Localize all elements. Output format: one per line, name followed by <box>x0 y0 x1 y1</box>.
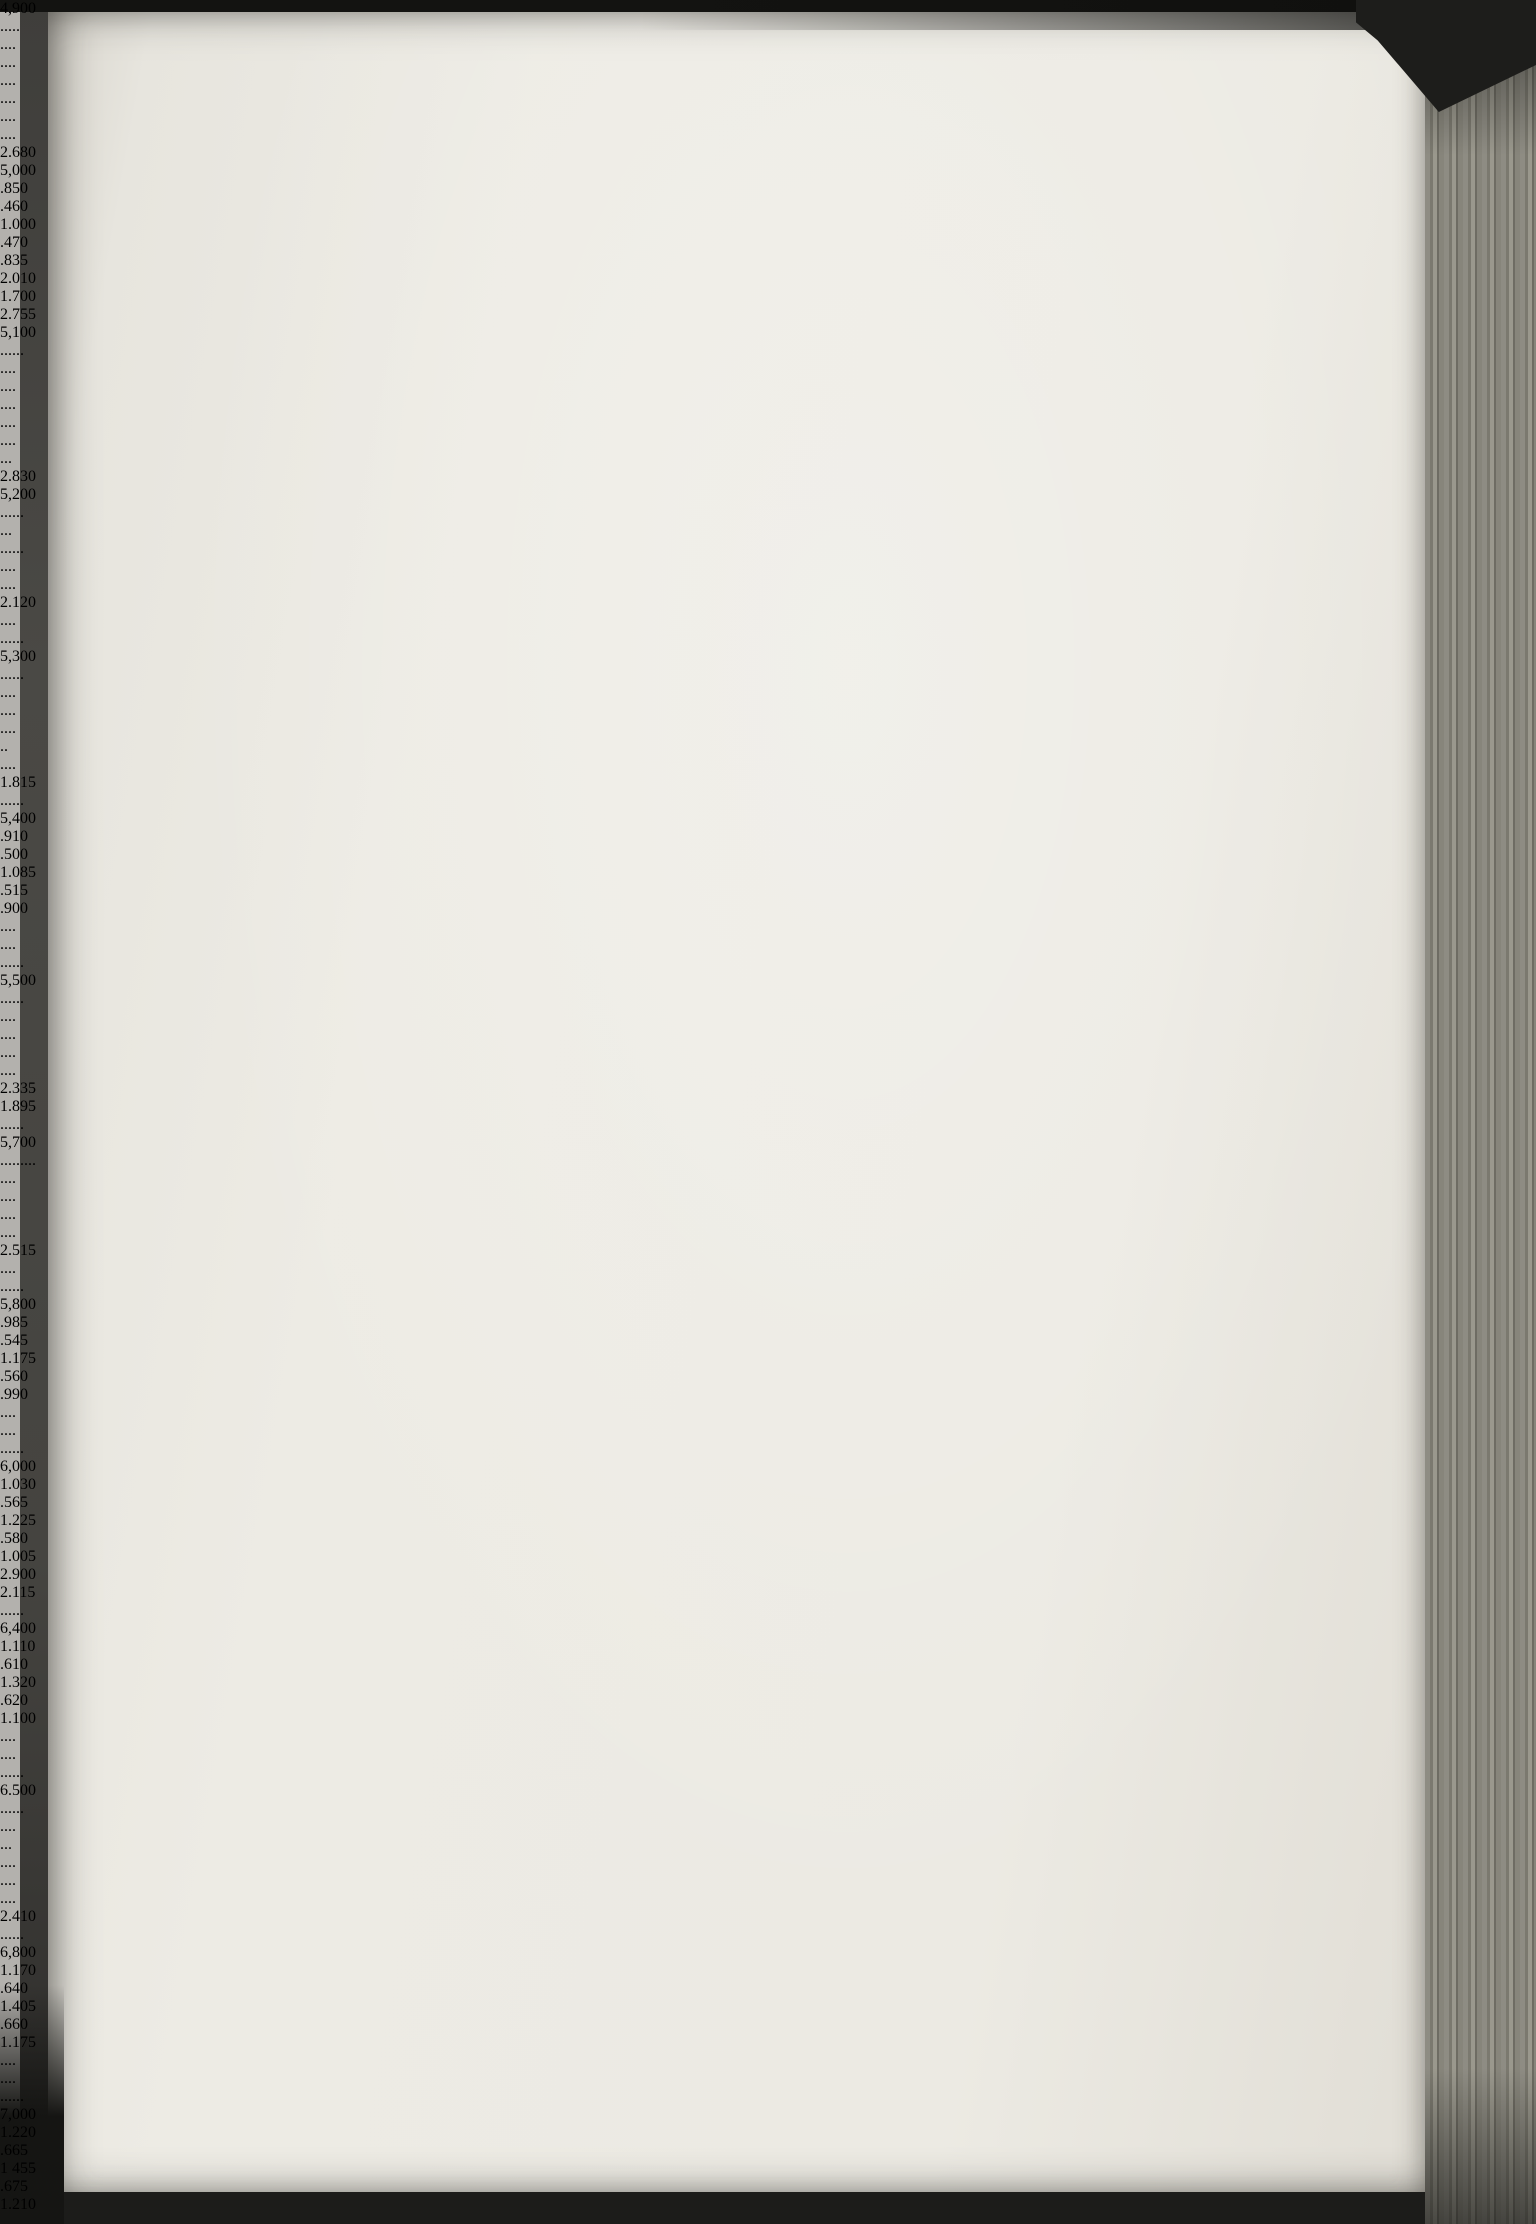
leader-dots: .... <box>0 1890 109 1908</box>
leader-dots: .... <box>0 1008 98 1026</box>
cell-value: 1.320 <box>0 1674 110 1692</box>
cell-value: .910 <box>0 828 100 846</box>
cell-value: .900 <box>0 900 98 918</box>
leader-dots: ..... <box>0 18 100 36</box>
leader-dots: .... <box>0 576 98 594</box>
leader-dots: .... <box>0 1206 82 1224</box>
load-value: 5,500 <box>0 972 96 990</box>
cell-value: 1.895 <box>0 1098 98 1116</box>
leader-dots: .... <box>0 1224 98 1242</box>
cell-value: 1.175 <box>0 1350 110 1368</box>
leader-dots: .... <box>0 702 110 720</box>
leader-dots: .... <box>0 90 98 108</box>
cell-value: 1.170 <box>0 1962 100 1980</box>
leader-dots: .... <box>0 72 82 90</box>
cell-value: 1.100 <box>0 1710 98 1728</box>
load-value: 5,300 <box>0 648 96 666</box>
cell-value: .985 <box>0 1314 100 1332</box>
cell-value: 2.010 <box>0 270 109 288</box>
load-value: 6.500 <box>0 1782 96 1800</box>
leader-dots: .... <box>0 360 98 378</box>
cell-value: 2.515 <box>0 1242 109 1260</box>
cell-value: .610 <box>0 1656 98 1674</box>
leader-dots: .... <box>0 1026 110 1044</box>
load-value: 5,100 <box>0 324 96 342</box>
leader-dots: ...... <box>0 342 100 360</box>
leader-dots: ...... <box>0 504 100 522</box>
cell-value: .620 <box>0 1692 82 1710</box>
load-value: 5,200 <box>0 486 96 504</box>
load-value: 6,000 <box>0 1458 96 1476</box>
leader-dots: ......... <box>0 1152 100 1170</box>
cell-value: .460 <box>0 198 98 216</box>
cell-value: 1.220 <box>0 2124 100 2142</box>
cell-value: 2.410 <box>0 1908 98 1926</box>
leader-dots: ...... <box>0 1800 100 1818</box>
cell-value: 1.175 <box>0 2034 98 2052</box>
table-body: 4,900.............................2.6805… <box>0 0 1536 2224</box>
leader-dots: .... <box>0 612 98 630</box>
leader-dots: ...... <box>0 1926 115 1944</box>
leader-dots: .... <box>0 720 82 738</box>
leader-dots: ...... <box>0 2088 115 2106</box>
leader-dots: .... <box>0 1854 82 1872</box>
load-value: 5,000 <box>0 162 96 180</box>
cell-value: .470 <box>0 234 82 252</box>
cell-value: 1.110 <box>0 1638 100 1656</box>
leader-dots: ... <box>0 1836 110 1854</box>
cell-value: .565 <box>0 1494 98 1512</box>
leader-dots: ...... <box>0 666 100 684</box>
leader-dots: .... <box>0 126 98 144</box>
book-scan-scene: Red Pine, White Pine and Spruce. 141 TAB… <box>0 0 1536 2224</box>
cell-value: 1.405 <box>0 1998 110 2016</box>
cell-value: .990 <box>0 1386 98 1404</box>
leader-dots: .... <box>0 1422 98 1440</box>
leader-dots: .... <box>0 108 109 126</box>
cell-value: .515 <box>0 882 82 900</box>
cell-value: 1.700 <box>0 288 98 306</box>
leader-dots: .... <box>0 54 110 72</box>
cell-value: 1.005 <box>0 1548 98 1566</box>
cell-value: .500 <box>0 846 98 864</box>
load-value: 6,800 <box>0 1944 96 1962</box>
cell-value: 2.120 <box>0 594 109 612</box>
cell-value: 2.335 <box>0 1080 109 1098</box>
load-value: 6,400 <box>0 1620 96 1638</box>
cell-value: 2.680 <box>0 144 115 162</box>
cell-value: 2.755 <box>0 306 115 324</box>
leader-dots: ...... <box>0 1116 115 1134</box>
leader-dots: .... <box>0 1728 109 1746</box>
leader-dots: ...... <box>0 540 110 558</box>
cell-value: .560 <box>0 1368 82 1386</box>
leader-dots: .... <box>0 558 82 576</box>
cell-value: .545 <box>0 1332 98 1350</box>
leader-dots: .... <box>0 936 98 954</box>
leader-dots: .... <box>0 1746 98 1764</box>
load-value: 5,800 <box>0 1296 96 1314</box>
cell-value: .660 <box>0 2016 82 2034</box>
load-value: 5,700 <box>0 1134 96 1152</box>
cell-value: .580 <box>0 1530 82 1548</box>
cell-value: 2.115 <box>0 1584 98 1602</box>
leader-dots: .... <box>0 378 110 396</box>
leader-dots: .... <box>0 756 109 774</box>
cell-value: 1.085 <box>0 864 110 882</box>
leader-dots: .... <box>0 1062 98 1080</box>
leader-dots: .... <box>0 2052 109 2070</box>
leader-dots: .... <box>0 918 109 936</box>
cell-value: 1 455 <box>0 2160 110 2178</box>
leader-dots: .... <box>0 2070 98 2088</box>
cell-value: 2.900 <box>0 1566 109 1584</box>
cell-value: 1.815 <box>0 774 98 792</box>
leader-dots: ...... <box>0 630 115 648</box>
leader-dots: .... <box>0 1872 98 1890</box>
cell-value: .665 <box>0 2142 98 2160</box>
leader-dots: .... <box>0 1404 109 1422</box>
cell-value: 1.000 <box>0 216 110 234</box>
cell-value: .850 <box>0 180 100 198</box>
load-value: 5,400 <box>0 810 96 828</box>
leader-dots: ...... <box>0 954 115 972</box>
load-value: 7,000 <box>0 2106 96 2124</box>
leader-dots: .... <box>0 432 109 450</box>
leader-dots: .... <box>0 1044 82 1062</box>
leader-dots: .... <box>0 1188 110 1206</box>
leader-dots: ... <box>0 450 98 468</box>
leader-dots: .... <box>0 414 98 432</box>
leader-dots: ... <box>0 522 98 540</box>
leader-dots: ...... <box>0 1440 115 1458</box>
leader-dots: .... <box>0 1818 98 1836</box>
leader-dots: ...... <box>0 1278 115 1296</box>
cell-value: 1.225 <box>0 1512 110 1530</box>
load-value: 4,900 <box>0 0 96 18</box>
leader-dots: .... <box>0 684 98 702</box>
leader-dots: ...... <box>0 792 115 810</box>
leader-dots: ...... <box>0 990 100 1008</box>
cell-value: .640 <box>0 1980 98 1998</box>
leader-dots: .. <box>0 738 98 756</box>
cell-value: .835 <box>0 252 98 270</box>
scan-bottom-edge <box>0 2190 1536 2224</box>
leader-dots: .... <box>0 36 98 54</box>
leader-dots: ...... <box>0 1602 115 1620</box>
leader-dots: .... <box>0 1260 98 1278</box>
leader-dots: .... <box>0 1170 98 1188</box>
cell-value: 1.030 <box>0 1476 100 1494</box>
leader-dots: ...... <box>0 1764 115 1782</box>
cell-value: 2.830 <box>0 468 115 486</box>
leader-dots: .... <box>0 396 82 414</box>
